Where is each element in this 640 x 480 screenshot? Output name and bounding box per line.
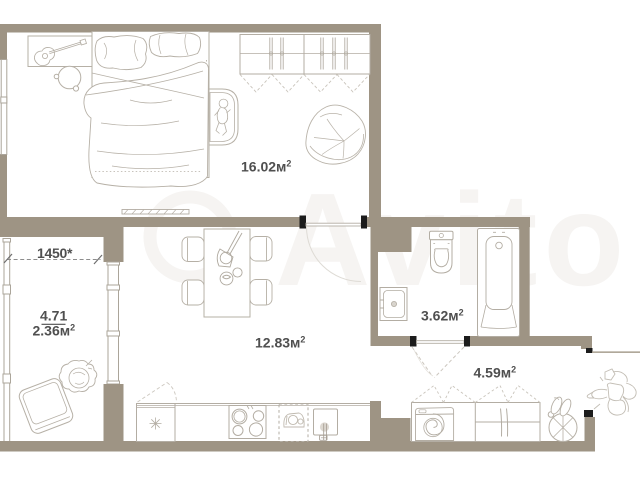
svg-text:3.62м2: 3.62м2 [421,308,464,324]
svg-text:12.83м2: 12.83м2 [255,335,305,351]
svg-text:2.36м2: 2.36м2 [33,323,76,339]
svg-text:16.02м2: 16.02м2 [241,159,291,175]
svg-text:1450*: 1450* [37,245,73,261]
svg-text:4.71: 4.71 [40,308,67,324]
svg-text:4.59м2: 4.59м2 [474,365,517,381]
